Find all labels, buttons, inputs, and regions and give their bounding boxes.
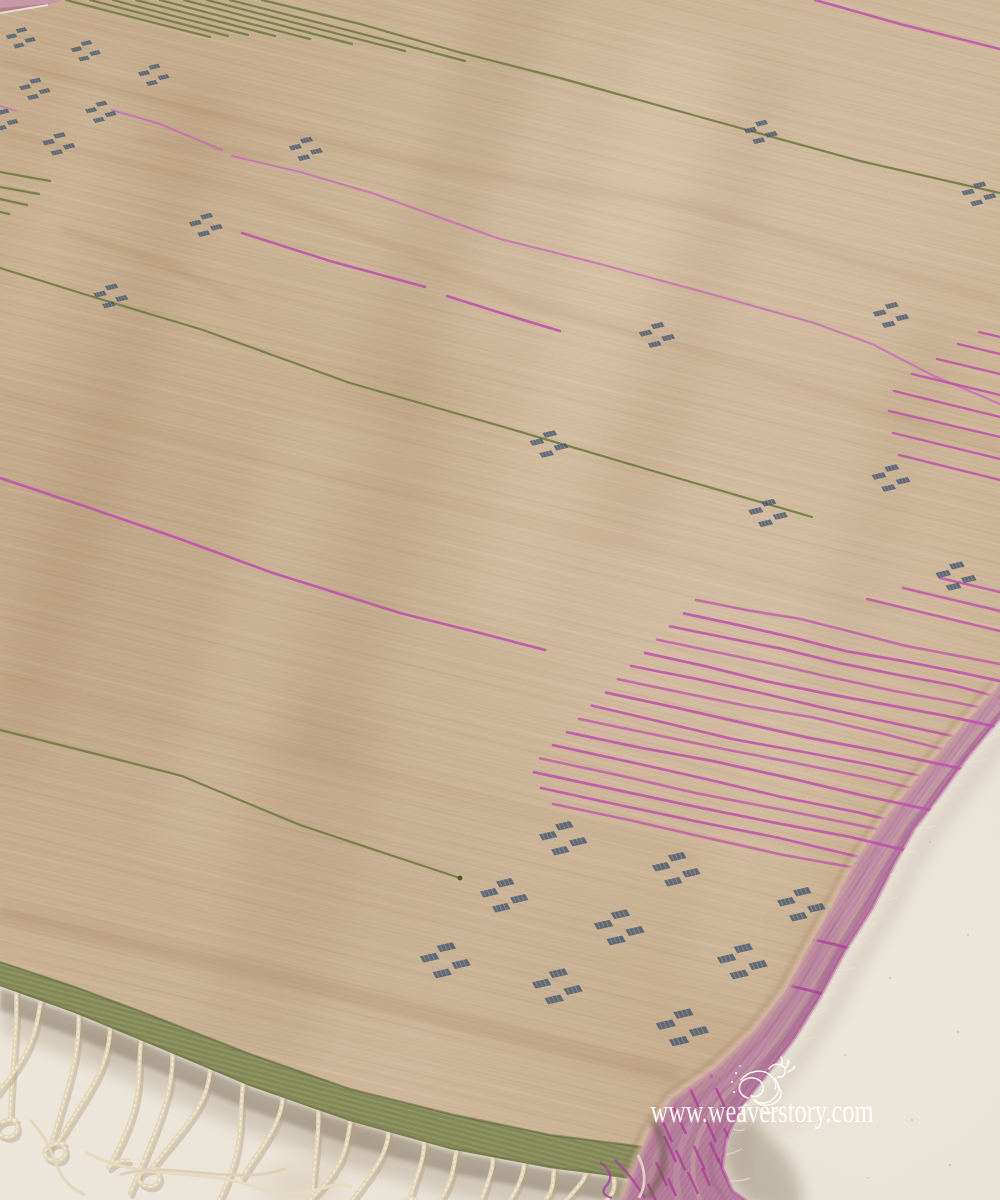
svg-text:www.weaverstory.com: www.weaverstory.com	[651, 1094, 874, 1130]
